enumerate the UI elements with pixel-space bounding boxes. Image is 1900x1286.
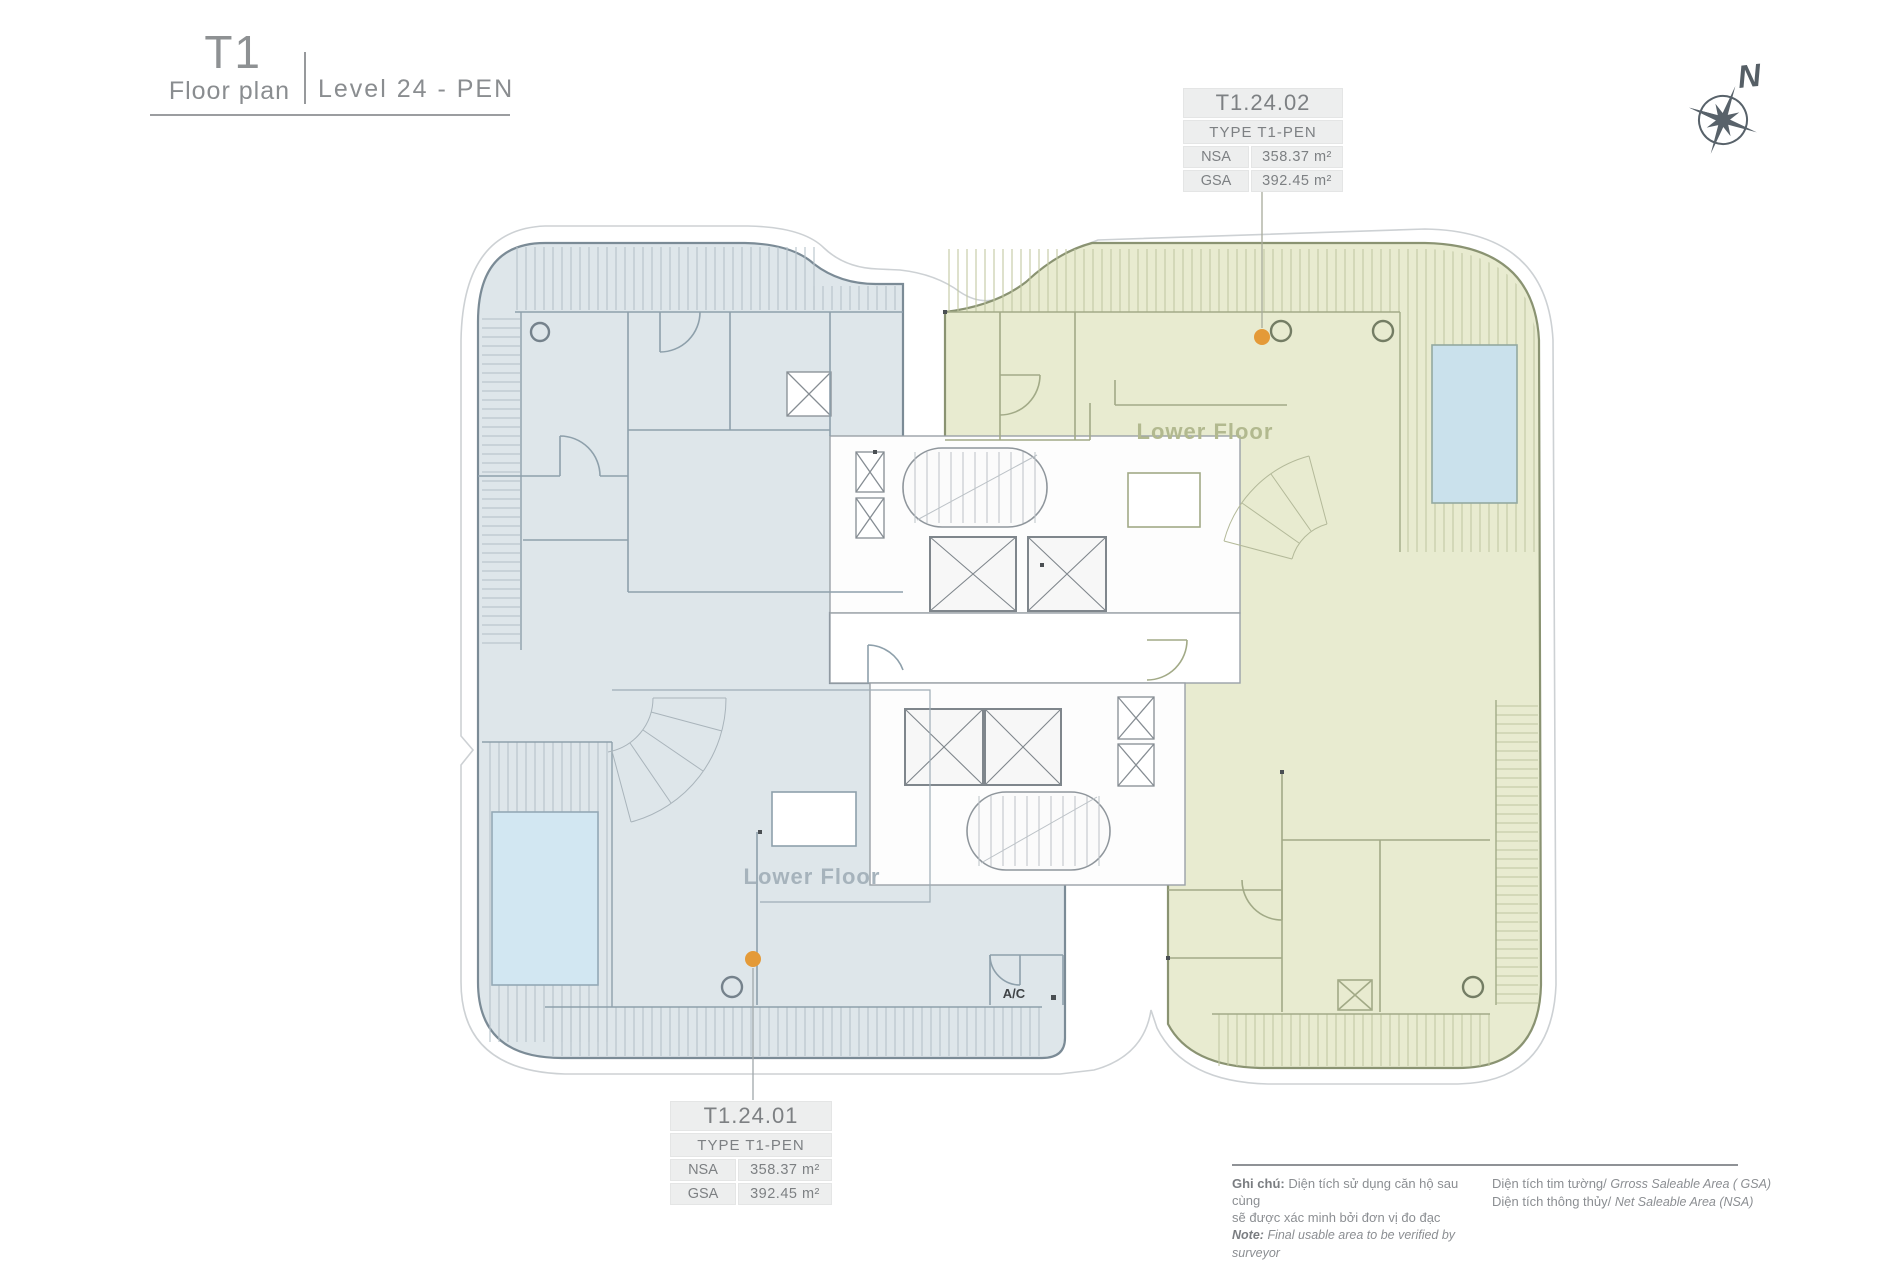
north-compass: N — [1672, 36, 1792, 171]
gsa-label: GSA — [670, 1183, 736, 1205]
notes-ghichu-label: Ghi chú: — [1232, 1176, 1285, 1191]
nsa-value: 358.37 m² — [738, 1159, 832, 1181]
floorplan-drawing: Lower Floor Lower Floor A/C — [0, 0, 1900, 1286]
legend-notes: Ghi chú: Diện tích sử dụng căn hộ sau cù… — [1232, 1164, 1740, 1262]
title-underline — [150, 114, 510, 116]
unit-01-marker — [745, 951, 761, 967]
stair-upper — [903, 448, 1047, 527]
title-block: T1 Floor plan Level 24 - PEN — [150, 28, 520, 116]
unit-02-pool — [1432, 345, 1517, 503]
unit-type: TYPE T1-PEN — [1183, 120, 1343, 144]
tower-name: T1 — [204, 28, 290, 76]
title-divider — [304, 52, 306, 104]
notes-note-text: Final usable area to be verified by surv… — [1232, 1228, 1455, 1260]
gsa-row: GSA 392.45 m² — [1183, 170, 1343, 192]
compass-north-label: N — [1736, 57, 1764, 95]
notes-divider — [1232, 1164, 1738, 1166]
nsa-row: NSA 358.37 m² — [670, 1159, 832, 1181]
notes-right: Diện tích tim tường/ Grross Saleable Are… — [1492, 1175, 1740, 1262]
gsa-row: GSA 392.45 m² — [670, 1183, 832, 1205]
lower-floor-label-unit-01: Lower Floor — [744, 864, 881, 889]
floorplan-page: Lower Floor Lower Floor A/C T1 Floor pla… — [0, 0, 1900, 1286]
gsa-value: 392.45 m² — [1251, 170, 1343, 192]
nsa-label: NSA — [1183, 146, 1249, 168]
unit-02-marker — [1254, 329, 1270, 345]
gsa-label: GSA — [1183, 170, 1249, 192]
callout-unit-T1-24-01[interactable]: T1.24.01 TYPE T1-PEN NSA 358.37 m² GSA 3… — [670, 1101, 832, 1205]
ac-label: A/C — [1003, 986, 1026, 1001]
unit-01-pool — [492, 812, 598, 985]
level-label: Level 24 - PEN — [318, 75, 514, 106]
gsa-term-en: Grross Saleable Area ( GSA) — [1610, 1177, 1771, 1191]
notes-left: Ghi chú: Diện tích sử dụng căn hộ sau cù… — [1232, 1175, 1478, 1262]
callout-unit-T1-24-02[interactable]: T1.24.02 TYPE T1-PEN NSA 358.37 m² GSA 3… — [1183, 88, 1343, 192]
nsa-row: NSA 358.37 m² — [1183, 146, 1343, 168]
notes-note-label: Note: — [1232, 1228, 1264, 1242]
notes-line2: sẽ được xác minh bởi đơn vị đo đạc — [1232, 1210, 1440, 1225]
nsa-term-vn: Diện tích thông thủy/ — [1492, 1194, 1611, 1209]
stair-lower — [967, 792, 1110, 870]
unit-id: T1.24.01 — [670, 1101, 832, 1131]
gsa-value: 392.45 m² — [738, 1183, 832, 1205]
nsa-value: 358.37 m² — [1251, 146, 1343, 168]
gsa-term-vn: Diện tích tim tường/ — [1492, 1176, 1607, 1191]
page-subtitle: Floor plan — [169, 76, 290, 106]
nsa-term-en: Net Saleable Area (NSA) — [1615, 1195, 1754, 1209]
unit-id: T1.24.02 — [1183, 88, 1343, 118]
nsa-label: NSA — [670, 1159, 736, 1181]
unit-type: TYPE T1-PEN — [670, 1133, 832, 1157]
lower-floor-label-unit-02: Lower Floor — [1137, 419, 1274, 444]
